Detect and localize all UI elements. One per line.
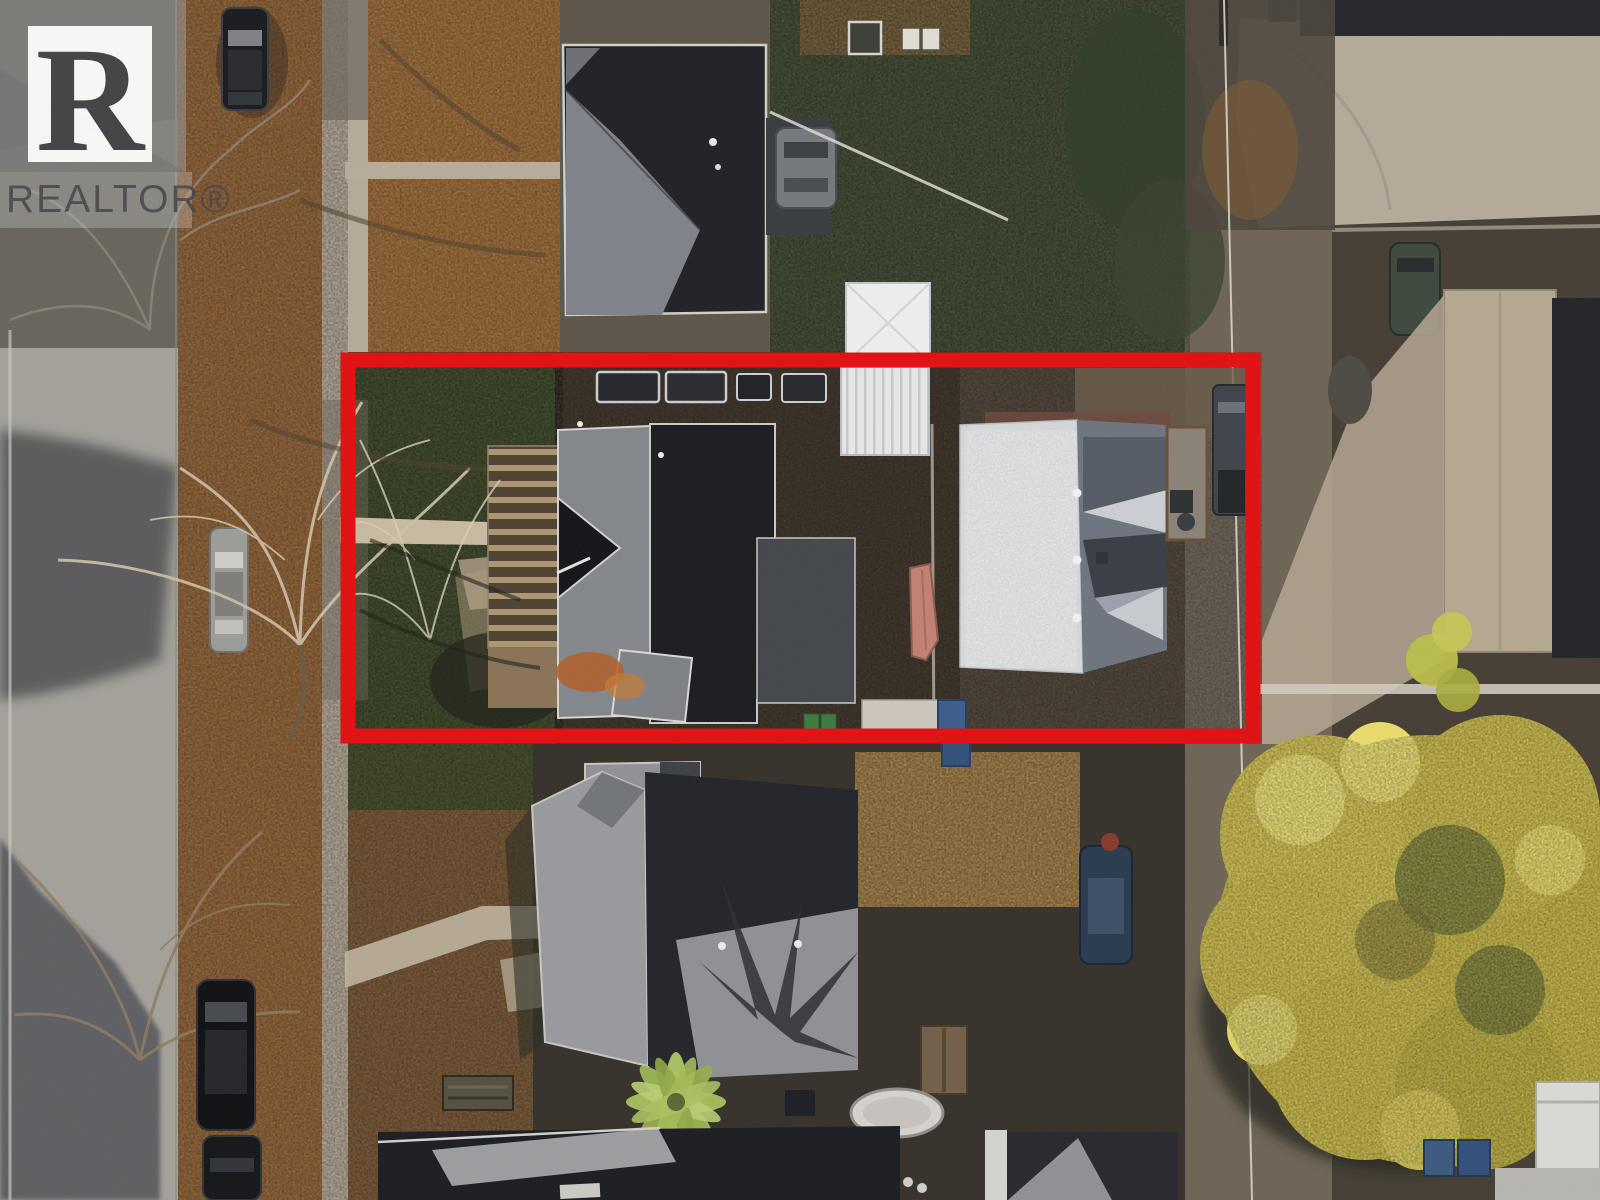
- aerial-photo: R REALTOR®: [0, 0, 1600, 1200]
- realtor-logo-r: R: [36, 17, 146, 183]
- aerial-photo-canvas: R REALTOR®: [0, 0, 1600, 1200]
- photo-grain: [0, 0, 1600, 1200]
- realtor-wordmark: REALTOR®: [6, 178, 231, 221]
